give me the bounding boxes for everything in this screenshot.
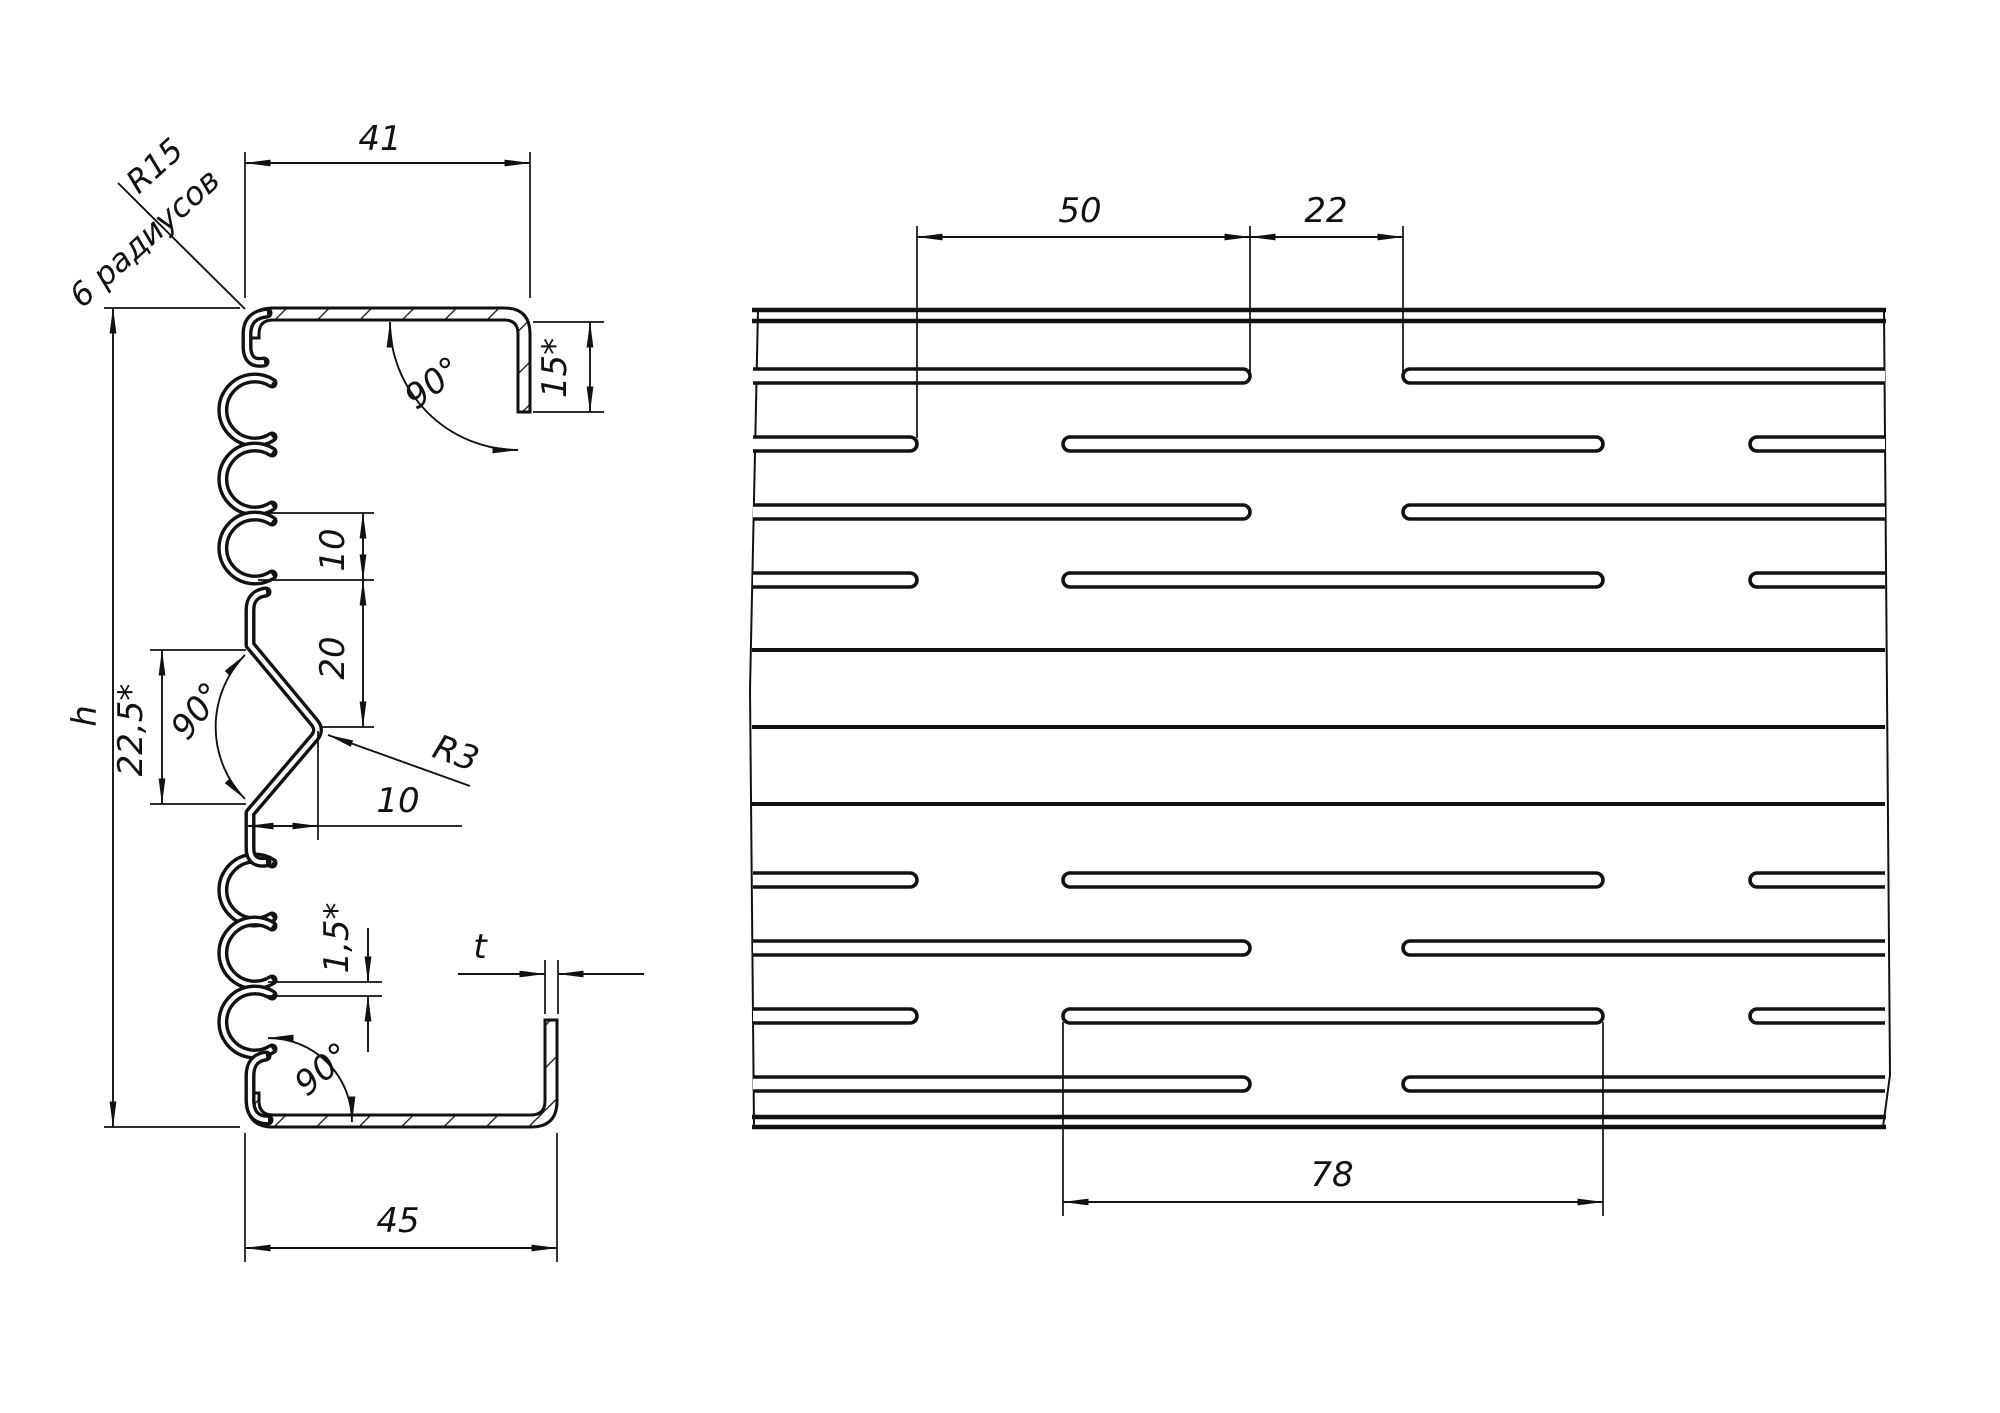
dim-rib-angle: 90° bbox=[163, 675, 232, 747]
thermal-slot bbox=[1063, 873, 1603, 887]
web-bridge-sections bbox=[223, 378, 272, 1054]
dim-rib-radius: R3 bbox=[428, 727, 484, 780]
face-right-break-edge bbox=[1883, 310, 1890, 1127]
thermal-slot bbox=[1750, 437, 1960, 451]
thermal-slot bbox=[1750, 873, 1960, 887]
thermal-slot bbox=[1063, 573, 1603, 587]
thermal-slot bbox=[1750, 1009, 1960, 1023]
dim-slot-length: 78 bbox=[1310, 1155, 1353, 1195]
angle-arc-rib bbox=[216, 655, 245, 799]
thermal-slot bbox=[1403, 369, 1960, 383]
thermal-slot bbox=[650, 573, 917, 587]
thermal-slot bbox=[650, 505, 1250, 519]
dim-rib-depth: 10 bbox=[376, 781, 419, 821]
top-flange-section bbox=[247, 308, 530, 412]
thermal-slot bbox=[1403, 941, 1960, 955]
engineering-drawing-sheet: 41 R15 6 радиусов 90° 15* h 10 20 22,5* bbox=[0, 0, 2000, 1413]
dim-row-stagger: 50 bbox=[1058, 191, 1101, 231]
thermal-slot-pattern bbox=[650, 369, 1960, 1091]
thermal-slot bbox=[1403, 1077, 1960, 1091]
dim-bridge-height: 10 bbox=[313, 528, 353, 571]
dim-top-width: 41 bbox=[358, 119, 401, 159]
dim-rib-span: 22,5* bbox=[111, 684, 151, 777]
face-view: 50 22 78 bbox=[650, 191, 1960, 1216]
web-v-rib bbox=[250, 592, 318, 862]
dim-thickness: t bbox=[473, 927, 488, 967]
thermal-slot bbox=[650, 1077, 1250, 1091]
dim-top-angle: 90° bbox=[397, 349, 469, 418]
thermal-slot bbox=[650, 941, 1250, 955]
thermal-slot bbox=[1403, 505, 1960, 519]
dim-lip-length: 15* bbox=[535, 338, 575, 398]
thermal-slot bbox=[650, 873, 917, 887]
dim-rib-clearance: 20 bbox=[313, 636, 353, 679]
dim-bottom-offset: 1,5* bbox=[317, 902, 357, 973]
thermal-slot bbox=[1063, 437, 1603, 451]
dim-height: h bbox=[65, 705, 105, 727]
dim-slot-end-gap: 22 bbox=[1304, 191, 1347, 231]
thermal-slot bbox=[650, 437, 917, 451]
section-view: 41 R15 6 радиусов 90° 15* h 10 20 22,5* bbox=[62, 119, 644, 1262]
thermal-slot bbox=[1063, 1009, 1603, 1023]
dim-bottom-width: 45 bbox=[376, 1201, 419, 1241]
thermal-slot bbox=[650, 369, 1250, 383]
thermoprofile-drawing: 41 R15 6 радиусов 90° 15* h 10 20 22,5* bbox=[0, 0, 2000, 1413]
thermal-slot bbox=[1750, 573, 1960, 587]
face-left-break-edge bbox=[750, 310, 758, 1127]
thermal-slot bbox=[650, 1009, 917, 1023]
